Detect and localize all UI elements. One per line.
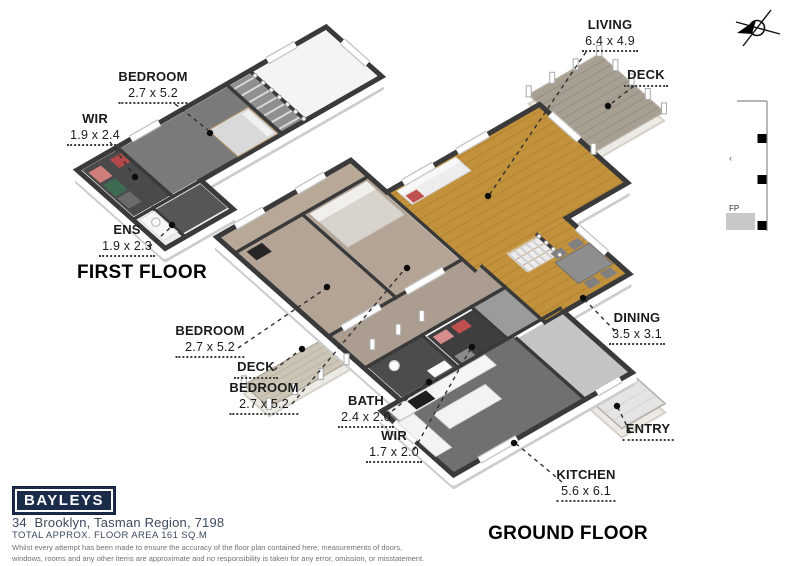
room-dims: 1.9 x 2.3	[99, 239, 155, 257]
compass-icon	[736, 10, 780, 46]
floorplan-page: FP‹ BEDROOM 2.7 x 5.2 WIR 1.9 x 2.4 ENS …	[0, 0, 800, 566]
room-label-ff-ens: ENS 1.9 x 2.3	[99, 223, 155, 257]
room-name: KITCHEN	[556, 468, 615, 483]
room-dims: 2.7 x 5.2	[175, 340, 244, 358]
disclaimer: Whilst every attempt has been made to en…	[12, 543, 424, 566]
room-label-kitchen: KITCHEN 5.6 x 6.1	[556, 468, 615, 502]
room-name: ENS	[99, 223, 155, 238]
room-label-deck-wing: DECK	[234, 360, 278, 379]
room-name: WIR	[67, 112, 123, 127]
room-label-g-bedroom2: BEDROOM 2.7 x 5.2	[229, 381, 298, 415]
first-floor-title: FIRST FLOOR	[77, 262, 207, 284]
room-dims: 6.4 x 4.9	[582, 34, 638, 52]
room-name: BATH	[338, 394, 394, 409]
room-dims: 2.4 x 2.0	[338, 410, 394, 428]
bayleys-logo: BAYLEYS	[12, 486, 116, 515]
fp-label: FP	[729, 204, 739, 213]
property-address: 34 Brooklyn, Tasman Region, 7198	[12, 515, 224, 530]
room-label-living: LIVING 6.4 x 4.9	[582, 18, 638, 52]
tick-glyph: ‹	[729, 153, 732, 163]
room-name: DECK	[234, 360, 278, 379]
floor-area-line: TOTAL APPROX. FLOOR AREA 161 SQ.M	[12, 530, 207, 541]
room-dims: 5.6 x 6.1	[556, 484, 615, 502]
ground-floor-title: GROUND FLOOR	[488, 523, 648, 545]
room-label-ff-wir: WIR 1.9 x 2.4	[67, 112, 123, 146]
room-dims: 2.7 x 5.2	[118, 86, 187, 104]
fp-marker: FP‹	[726, 101, 767, 231]
room-name: LIVING	[582, 18, 638, 33]
room-label-g-bedroom1: BEDROOM 2.7 x 5.2	[175, 324, 244, 358]
room-name: BEDROOM	[175, 324, 244, 339]
disclaimer-line: Whilst every attempt has been made to en…	[12, 543, 424, 554]
room-name: ENTRY	[623, 422, 674, 441]
room-label-dining: DINING 3.5 x 3.1	[609, 311, 665, 345]
bayleys-logo-text: BAYLEYS	[15, 489, 113, 512]
room-dims: 1.9 x 2.4	[67, 128, 123, 146]
room-label-bath: BATH 2.4 x 2.0	[338, 394, 394, 428]
room-name: WIR	[366, 429, 422, 444]
room-label-entry: ENTRY	[623, 422, 674, 441]
room-name: BEDROOM	[229, 381, 298, 396]
room-dims: 3.5 x 3.1	[609, 327, 665, 345]
room-dims: 2.7 x 5.2	[229, 397, 298, 415]
room-dims: 1.7 x 2.0	[366, 445, 422, 463]
room-name: BEDROOM	[118, 70, 187, 85]
room-name: DECK	[624, 68, 668, 87]
room-label-deck-top: DECK	[624, 68, 668, 87]
room-name: DINING	[609, 311, 665, 326]
room-label-ff-bedroom: BEDROOM 2.7 x 5.2	[118, 70, 187, 104]
disclaimer-line: windows, rooms and any other items are a…	[12, 554, 424, 565]
room-label-g-wir: WIR 1.7 x 2.0	[366, 429, 422, 463]
